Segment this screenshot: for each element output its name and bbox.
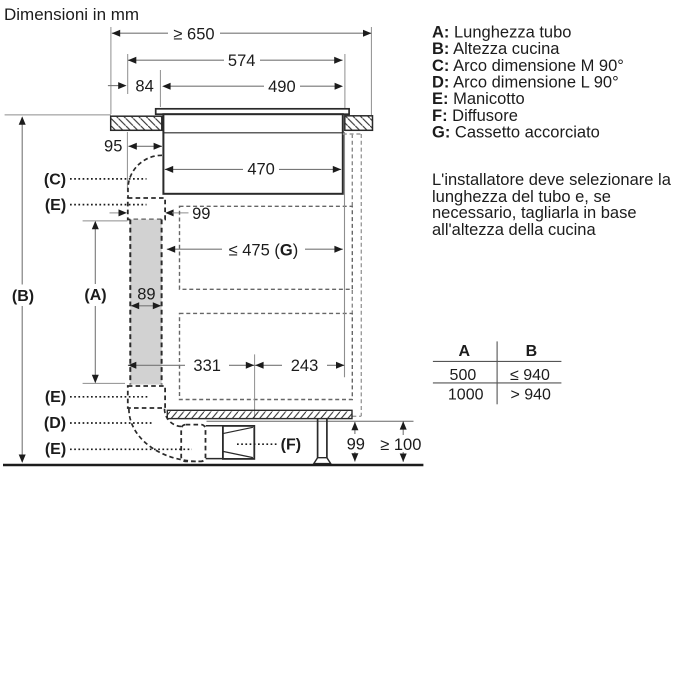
svg-text:(E): (E)	[45, 441, 66, 458]
svg-text:G: Cassetto accorciato: G: Cassetto accorciato	[432, 123, 600, 141]
svg-text:99: 99	[347, 436, 365, 454]
svg-text:≥ 650: ≥ 650	[173, 25, 214, 43]
svg-text:L'installatore deve selezionar: L'installatore deve selezionare la	[432, 171, 672, 189]
svg-text:95: 95	[104, 138, 122, 156]
svg-text:(E): (E)	[45, 197, 66, 214]
svg-text:574: 574	[228, 52, 256, 70]
svg-text:≥ 100: ≥ 100	[380, 436, 421, 454]
svg-text:E: Manicotto: E: Manicotto	[432, 90, 525, 108]
svg-text:243: 243	[291, 357, 319, 375]
svg-text:≤ 940: ≤ 940	[510, 367, 550, 384]
svg-text:500: 500	[450, 367, 477, 384]
svg-text:84: 84	[135, 78, 153, 96]
svg-text:470: 470	[247, 160, 275, 178]
svg-text:490: 490	[268, 78, 296, 96]
svg-text:89: 89	[137, 286, 155, 304]
svg-text:(C): (C)	[44, 172, 66, 189]
svg-text:B: B	[526, 343, 538, 360]
svg-text:1000: 1000	[448, 386, 484, 403]
svg-text:B: Altezza cucina: B: Altezza cucina	[432, 40, 560, 58]
svg-text:(A): (A)	[84, 287, 106, 304]
svg-text:331: 331	[193, 357, 221, 375]
svg-text:> 940: > 940	[510, 386, 551, 403]
svg-text:D: Arco dimensione L 90°: D: Arco dimensione L 90°	[432, 73, 619, 91]
svg-text:C: Arco dimensione M 90°: C: Arco dimensione M 90°	[432, 57, 624, 75]
svg-text:F: Diffusore: F: Diffusore	[432, 107, 518, 125]
svg-text:all'altezza della cucina: all'altezza della cucina	[432, 221, 596, 239]
svg-text:A: Lunghezza tubo: A: Lunghezza tubo	[432, 23, 571, 41]
svg-text:(B): (B)	[12, 288, 34, 305]
svg-text:Dimensioni in mm: Dimensioni in mm	[4, 5, 139, 24]
svg-text:≤ 475 (G): ≤ 475 (G)	[229, 241, 299, 259]
svg-text:(F): (F)	[281, 436, 301, 453]
svg-text:(D): (D)	[44, 415, 66, 432]
svg-text:A: A	[459, 343, 471, 360]
svg-text:(E): (E)	[45, 389, 66, 406]
svg-text:99: 99	[192, 205, 210, 223]
svg-text:necessario, tagliarla in base: necessario, tagliarla in base	[432, 204, 637, 222]
